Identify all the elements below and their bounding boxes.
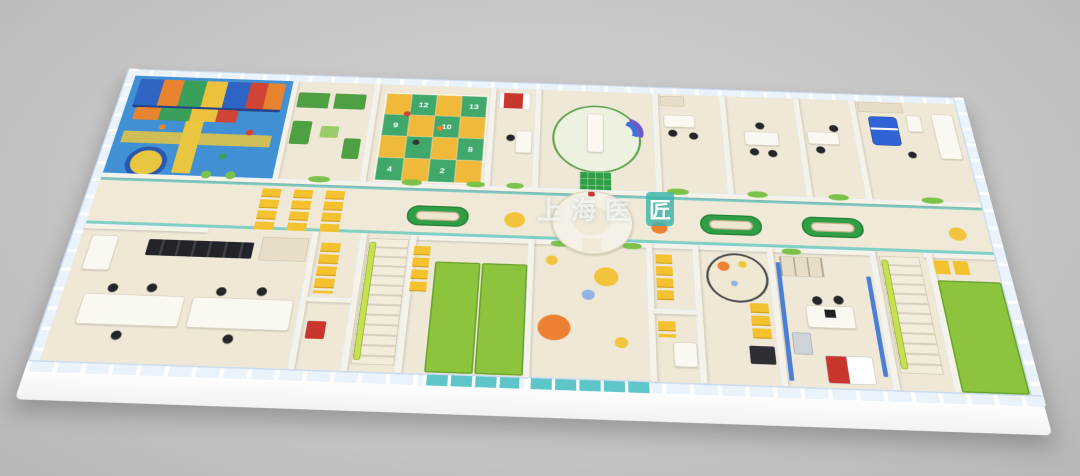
board-cell (401, 158, 430, 182)
bench-seat (415, 211, 460, 222)
render-canvas: 12 13 9 10 8 4 2 (0, 0, 1080, 476)
reception-tan-cabinet (258, 237, 309, 262)
bush-decal (401, 179, 422, 186)
board-cell (454, 160, 482, 184)
board-cell (435, 95, 462, 117)
bench-seat (709, 220, 754, 231)
office1-desk (663, 115, 695, 128)
rug-toy-blue (731, 281, 738, 287)
bush-decal (308, 176, 331, 183)
consult-chairs (655, 254, 674, 303)
consult-chair-single (658, 321, 676, 338)
br-office-cabinet (779, 256, 825, 277)
registration-counter (74, 293, 185, 327)
corridor-bench (801, 216, 866, 238)
treatment-cabinet (857, 102, 903, 114)
reception-desk-opening (582, 238, 601, 252)
lobby-dot-orange-big (537, 314, 571, 341)
exam-bed (499, 92, 531, 109)
office3-desk (807, 131, 841, 145)
board-cell: 12 (410, 94, 438, 116)
therapy-mat (474, 263, 527, 376)
play-room-cubes (750, 303, 772, 340)
corridor-bench (406, 205, 470, 227)
bush-decal (466, 181, 485, 187)
board-cell: 4 (375, 157, 404, 181)
board-cell: 9 (381, 114, 410, 136)
watermark: 上海医匠 (537, 191, 674, 227)
office2-desk (744, 131, 780, 146)
rug-toy-yellow (738, 261, 747, 268)
board-cell: 13 (460, 96, 487, 118)
game-board: 12 13 9 10 8 4 2 (373, 92, 489, 184)
office2-chair-b (768, 150, 778, 157)
board-cell (458, 117, 485, 139)
board-cell (378, 135, 407, 158)
consult-desk (673, 342, 698, 368)
board-cell (407, 115, 435, 137)
br-office-monitor (824, 310, 836, 318)
lobby-dot-blue (582, 289, 595, 300)
office1-chair-b (689, 132, 698, 139)
lobby-dot-yellow-big (594, 267, 618, 287)
office2-chair-a (750, 148, 760, 155)
bush-decal (506, 183, 524, 189)
rug-toy-orange (717, 261, 730, 271)
board-cell: 8 (456, 138, 484, 161)
br-office-machine (792, 332, 814, 355)
lobby-dot-yellow-small (615, 337, 629, 348)
watermark-text: 上海医 (537, 191, 639, 227)
lounge-sofa-right (341, 138, 361, 159)
board-cell: 2 (428, 159, 457, 183)
office2-chair-doctor (755, 122, 765, 129)
play-room-monitor-desk (749, 346, 776, 365)
hospital-floorplan: 12 13 9 10 8 4 2 (15, 69, 1053, 436)
board-cell (430, 137, 458, 160)
lounge-sofa-row (296, 92, 367, 109)
lounge-table (319, 126, 339, 138)
lobby-dot-yellow (546, 255, 558, 265)
corner-yellow-pads (933, 260, 972, 275)
storage-red-bench (304, 321, 326, 339)
office1-cabinet (660, 96, 685, 107)
office1-chair-a (668, 130, 677, 137)
br-office-bed (825, 355, 878, 385)
imaging-table (587, 113, 604, 152)
exam-desk (515, 130, 533, 153)
corridor-bench (700, 214, 763, 236)
registration-counter (185, 297, 294, 331)
bench-seat (810, 222, 855, 233)
watermark-badge: 匠 (646, 192, 674, 226)
